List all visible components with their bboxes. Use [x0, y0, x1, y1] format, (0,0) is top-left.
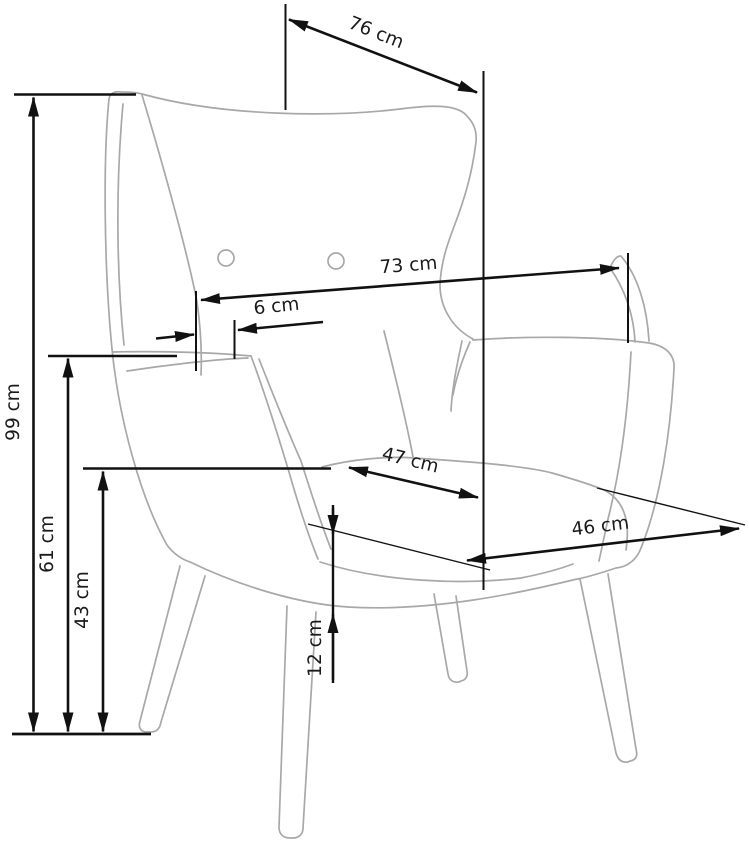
- chair-leg-back-right: [434, 594, 467, 682]
- dimension-arrow: [238, 322, 323, 330]
- dimension-label: 12 cm: [305, 619, 326, 677]
- dimension-label: 6 cm: [253, 294, 301, 320]
- dimension-label: 99 cm: [3, 383, 24, 441]
- dimension-label: 46 cm: [570, 513, 630, 541]
- armchair-dimension-diagram: 76 cm 73 cm 6 cm 47 cm: [0, 0, 749, 866]
- dimension-frame-thickness-12cm: 12 cm: [305, 505, 333, 683]
- chair-left-armrest-front-edge: [251, 356, 318, 559]
- dimension-label: 43 cm: [72, 571, 93, 629]
- dimension-seat-height-43cm: 43 cm: [72, 472, 103, 732]
- diagram-canvas: 76 cm 73 cm 6 cm 47 cm: [0, 0, 749, 866]
- chair-left-armrest-lower-seam: [127, 358, 248, 371]
- dimension-thickness-6cm: 6 cm: [156, 294, 323, 359]
- chair-base-seam: [320, 562, 573, 581]
- chair-leg-front-right: [580, 574, 637, 762]
- chair-left-armrest-front-seam: [259, 359, 331, 549]
- dimension-label: 61 cm: [37, 515, 58, 573]
- chair-back-cushion-right-seam: [451, 341, 462, 411]
- tufting-button-left: [218, 250, 234, 266]
- leader-line: [308, 524, 490, 570]
- chair-left-side-outline: [112, 349, 190, 562]
- chair-leg-back-left: [139, 566, 205, 732]
- tufting-button-right: [328, 253, 344, 269]
- dimension-total-height-99cm: 99 cm: [3, 95, 151, 735]
- dimension-arrow: [156, 335, 194, 339]
- dimension-label: 73 cm: [379, 253, 438, 278]
- chair-right-wing-inner: [610, 268, 635, 342]
- chair-base-bottom-edge: [190, 562, 577, 608]
- chair-right-armrest-outline: [473, 337, 674, 579]
- chair-back-cushion-corner-seam: [453, 342, 470, 395]
- chair-backrest-lumbar-seam: [384, 331, 413, 457]
- dimension-depth-76cm: 76 cm: [286, 4, 484, 590]
- chair-left-wing-fold: [142, 95, 201, 375]
- dimension-label: 76 cm: [345, 13, 406, 54]
- dimension-label: 47 cm: [380, 444, 441, 478]
- chair-back-left-seam: [118, 104, 124, 345]
- chair-seat-back-edge: [322, 457, 604, 490]
- dimension-seat-width-46cm: 46 cm: [308, 488, 745, 570]
- dimension-armrest-height-61cm: 61 cm: [37, 356, 177, 732]
